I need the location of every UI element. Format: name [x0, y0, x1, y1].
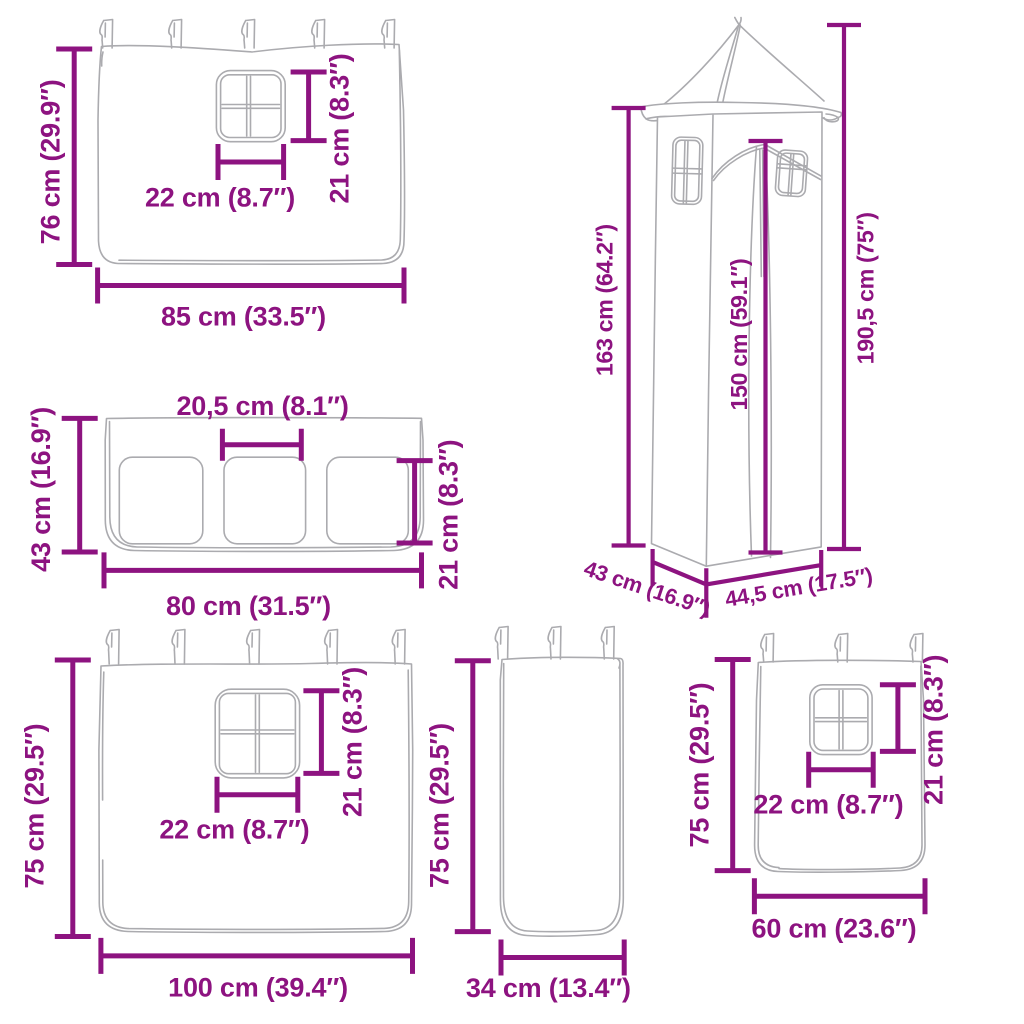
svg-text:21 cm (8.3″): 21 cm (8.3″) — [337, 667, 367, 817]
svg-text:21 cm (8.3″): 21 cm (8.3″) — [324, 53, 354, 203]
svg-text:20,5 cm (8.1″): 20,5 cm (8.1″) — [176, 391, 348, 421]
svg-text:43 cm (16.9″): 43 cm (16.9″) — [581, 556, 714, 621]
svg-text:75 cm (29.5″): 75 cm (29.5″) — [424, 723, 454, 888]
svg-text:21 cm (8.3″): 21 cm (8.3″) — [918, 655, 948, 805]
svg-text:150 cm (59.1″): 150 cm (59.1″) — [726, 259, 752, 411]
svg-text:190,5 cm (75″): 190,5 cm (75″) — [852, 212, 878, 364]
svg-text:80 cm (31.5″): 80 cm (31.5″) — [166, 591, 331, 621]
svg-text:22 cm (8.7″): 22 cm (8.7″) — [159, 815, 309, 845]
svg-text:21 cm (8.3″): 21 cm (8.3″) — [434, 440, 464, 590]
svg-text:100 cm (39.4″): 100 cm (39.4″) — [168, 973, 348, 1003]
svg-text:75 cm (29.5″): 75 cm (29.5″) — [685, 683, 715, 848]
svg-text:43 cm (16.9″): 43 cm (16.9″) — [26, 407, 56, 572]
svg-text:163 cm (64.2″): 163 cm (64.2″) — [591, 224, 617, 376]
svg-text:60 cm (23.6″): 60 cm (23.6″) — [752, 914, 917, 944]
svg-text:34 cm (13.4″): 34 cm (13.4″) — [466, 973, 631, 1003]
svg-text:76 cm (29.9″): 76 cm (29.9″) — [36, 79, 66, 244]
svg-text:75 cm (29.5″): 75 cm (29.5″) — [19, 724, 49, 889]
svg-text:85 cm (33.5″): 85 cm (33.5″) — [161, 302, 326, 332]
svg-text:22 cm (8.7″): 22 cm (8.7″) — [753, 789, 903, 819]
svg-text:22 cm (8.7″): 22 cm (8.7″) — [145, 183, 295, 213]
